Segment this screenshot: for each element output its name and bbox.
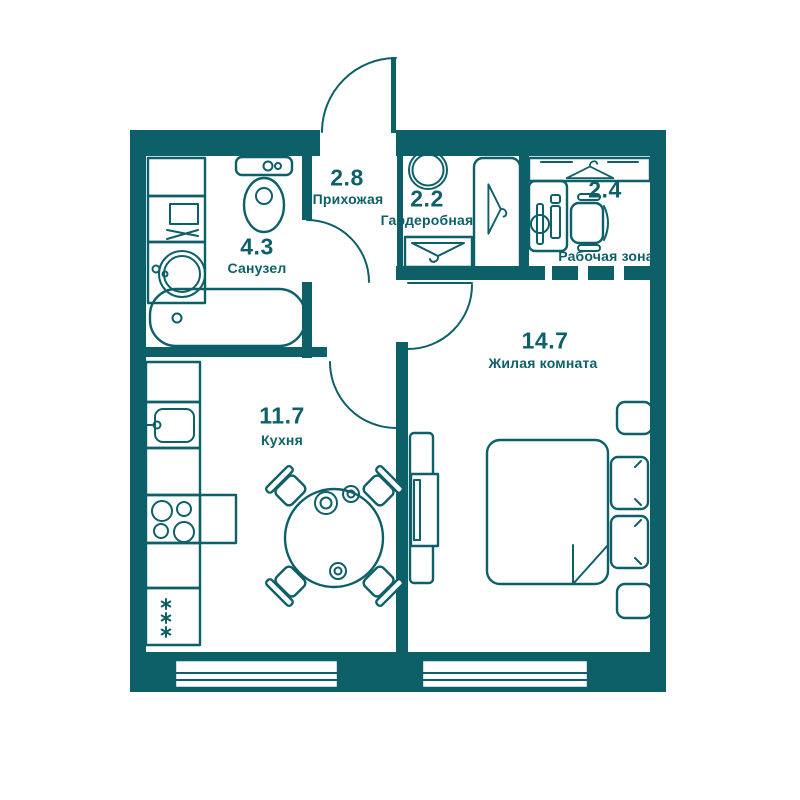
washbasin-icon — [148, 242, 205, 303]
room-area-bathroom: 4.3 — [240, 234, 273, 261]
room-name-kitchen: Кухня — [261, 432, 303, 448]
pillow-icon — [611, 457, 648, 509]
nightstand-icon — [617, 402, 652, 434]
room-area-living-room: 14.7 — [522, 328, 569, 355]
room-name-bathroom: Санузел — [228, 260, 287, 276]
room-area-work-zone: 2.4 — [588, 177, 621, 204]
stove-icon — [146, 495, 200, 543]
kitchen-door-arc — [330, 362, 396, 428]
window — [422, 660, 588, 688]
dining-table-icon — [265, 465, 404, 607]
entrance-door — [322, 57, 396, 133]
room-name-hallway: Прихожая — [313, 191, 384, 207]
window — [175, 660, 338, 688]
washing-machine-icon — [148, 196, 205, 242]
closet-column — [474, 158, 520, 278]
pouf-icon — [409, 151, 447, 189]
living-room-door — [408, 283, 472, 349]
room-name-work-zone: Рабочая зона — [558, 248, 654, 264]
bathroom-door-arc — [307, 220, 369, 282]
room-area-hallway: 2.8 — [330, 165, 363, 192]
floor-plan: 4.3 Санузел 2.8 Прихожая 2.2 Гардеробная… — [0, 0, 800, 800]
room-area-kitchen: 11.7 — [259, 403, 305, 430]
bed-icon — [487, 440, 608, 584]
room-area-wardrobe: 2.2 — [410, 186, 443, 213]
pillow-icon — [611, 516, 648, 568]
desk-icon — [529, 181, 567, 251]
fridge-snowflake-icon — [146, 588, 200, 645]
bathroom-cabinet — [148, 158, 205, 196]
room-name-living-room: Жилая комната — [488, 355, 597, 371]
toilet-icon — [236, 157, 292, 232]
hanger-rack — [405, 237, 472, 267]
nightstand-icon — [617, 584, 652, 618]
floor-plan-drawing — [0, 0, 800, 800]
kitchen-counter — [146, 362, 236, 588]
tv-icon — [411, 474, 438, 546]
room-name-wardrobe: Гардеробная — [381, 212, 474, 228]
zone-divider-dashed — [552, 266, 650, 280]
kitchen-sink-icon — [146, 402, 200, 448]
bathtub-icon — [150, 289, 305, 346]
